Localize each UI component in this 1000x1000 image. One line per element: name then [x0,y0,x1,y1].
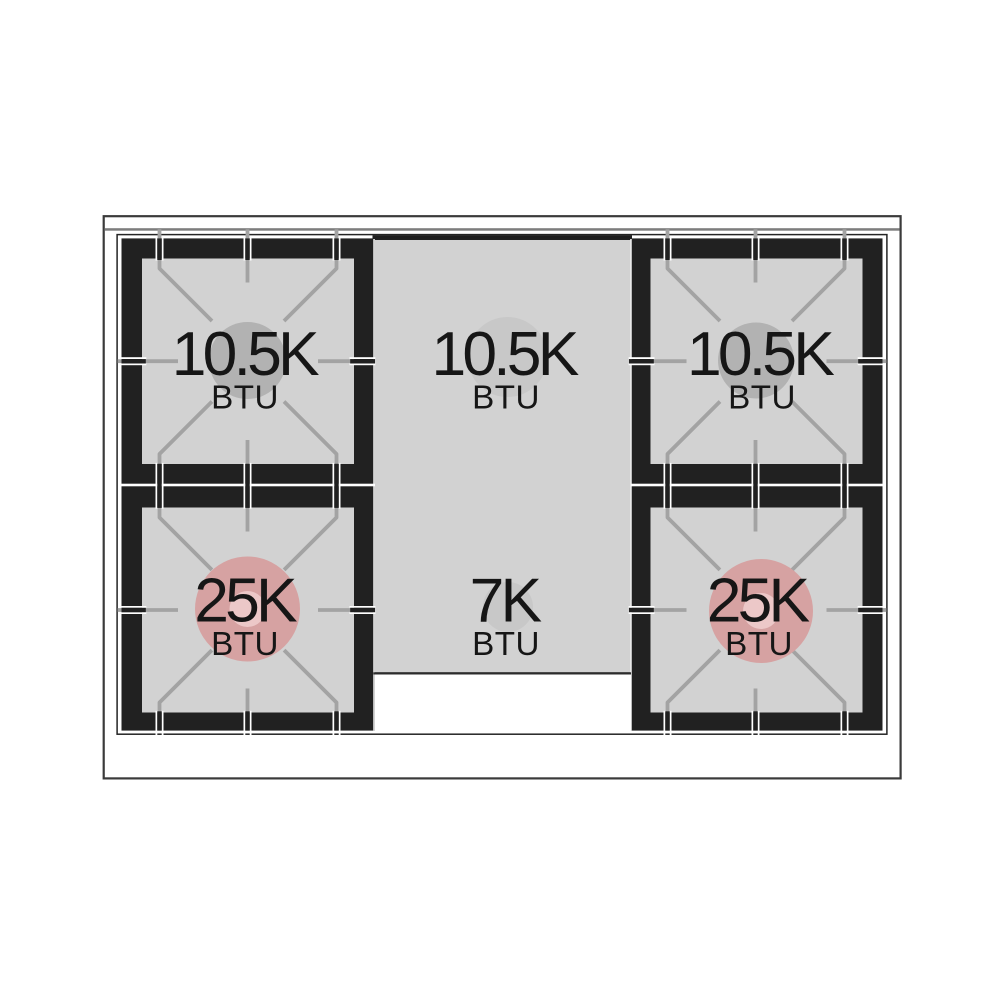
svg-text:BTU: BTU [472,380,540,417]
svg-text:BTU: BTU [728,380,796,417]
svg-text:BTU: BTU [472,626,540,663]
svg-text:BTU: BTU [211,380,279,417]
svg-text:BTU: BTU [725,626,793,663]
svg-text:BTU: BTU [211,626,279,663]
